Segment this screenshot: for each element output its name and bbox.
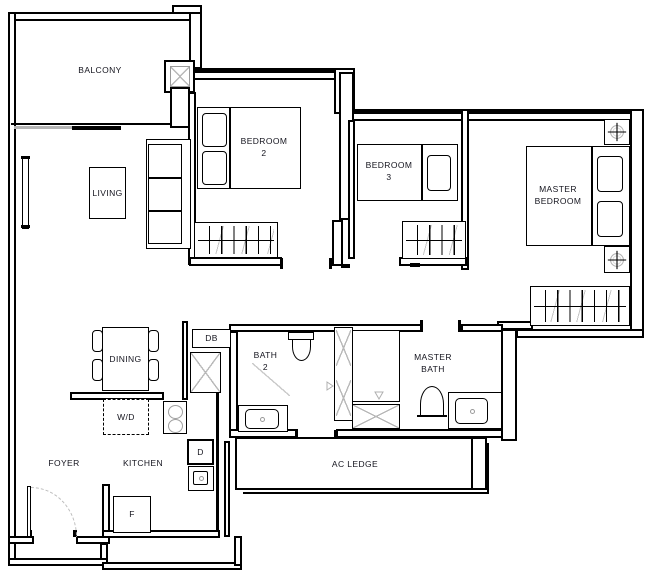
bedside-lamp-icon [606,121,628,143]
sofa-cushion-line [148,210,182,212]
pillow [597,201,623,237]
wall-right-outer [630,109,644,337]
duct-shaft-x-icon [336,380,351,416]
wall-master-bottom [516,329,644,338]
bedside-lamp-icon [606,249,628,271]
bedroom2-label: BEDROOM2 [226,131,302,163]
wall-foyer-bottom-a [8,536,34,544]
wall-left-outer [8,12,16,565]
balcony-label: BALCONY [60,62,140,78]
sliding-door-track [11,123,171,125]
sliding-door-panel-rear [14,126,76,129]
window-living-cap-bottom [21,225,30,228]
foyer-label: FOYER [40,456,88,470]
ac-shaft-icon [352,404,400,429]
wardrobe-bedroom2 [194,222,278,258]
master-bath-label: MASTERBATH [407,346,459,380]
window-living-left [22,157,29,229]
door-jamb [410,263,420,267]
burner-icon [168,419,183,433]
wardrobe-rail [534,306,626,307]
ac-ledge-label: AC LEDGE [310,456,400,472]
pillow [427,155,451,191]
dining-label: DINING [102,327,149,391]
window-band-bedroom2-thick [195,68,335,73]
duct-shaft-x-icon [336,330,351,366]
duct-shaft-kitchen-icon [190,352,221,393]
wall-kitchen-lower-band [102,562,242,570]
wash-basin-masterbath [455,398,488,424]
wall-kitchen-lower-right [234,536,242,566]
dining-chair [148,330,159,352]
wardrobe-master [530,286,630,326]
d-label: D [187,439,214,465]
window-living-cap-top [21,156,30,159]
wardrobe-rail [198,240,274,241]
wall-pillar-bedroom2-3 [332,220,343,266]
door-jamb [420,320,423,332]
bath2-label: BATH2 [238,346,293,376]
fridge-label: F [113,496,151,533]
wardrobe-rail [406,240,462,241]
door-jamb [280,258,283,269]
floor-plan: BALCONY LIVING BEDROOM2 BEDROOM3 MASTERB… [0,0,657,577]
db-label: DB [192,329,231,348]
pillow [202,113,227,147]
shower-drain-icon [374,391,384,400]
kitchen-label: KITCHEN [120,456,166,470]
dining-chair [148,359,159,381]
bedroom3-label: BEDROOM3 [356,156,422,186]
toilet-bowl-bath2 [292,340,311,361]
master-bedroom-label: MASTERBEDROOM [524,178,592,212]
ac-ledge-right-end [471,437,487,490]
ac-ledge-echo-right [487,443,489,494]
window-band-bedroom3-thick [354,109,462,114]
column-icon [170,66,190,87]
window-band-master-thick [469,109,630,114]
burner-icon [168,405,183,419]
toilet-tank-bath2 [288,332,314,340]
window-band-bedroom3-thin [354,119,462,121]
toilet-base-masterbath [417,415,447,417]
toilet-bowl-masterbath [420,386,444,416]
window-band-bedroom2-thin [195,78,335,80]
wash-basin-bath2 [245,409,279,429]
door-jamb [458,320,461,332]
wall-bath-top-east [461,324,503,332]
wardrobe-bedroom3 [402,221,466,259]
wall-corridor-strip [224,441,230,537]
kitchen-sink-basin [193,471,208,485]
pillow [202,151,227,185]
pillow [597,156,623,192]
sliding-door-panel-front [72,126,121,130]
wall-masterbath-right [501,329,517,441]
wall-alcove-bottom [8,558,108,566]
entry-door-swing-icon [31,487,77,537]
wall-bedroom3-left [348,120,355,259]
door-jamb [329,258,332,269]
sofa-cushion-line [148,177,182,179]
door-jamb [341,264,350,268]
ac-ledge-echo-line [243,492,489,494]
drain-icon [326,381,334,391]
wall-alcove-right [100,543,108,560]
wall-below-column [170,87,190,128]
sofa-seat [148,144,182,244]
wall-bedroom2-bottom [189,257,282,266]
washer-dryer-label: W/D [103,399,149,435]
wall-db-shaft-left [182,321,188,400]
living-label: LIVING [89,167,126,219]
wall-kitchen-right [216,390,219,537]
